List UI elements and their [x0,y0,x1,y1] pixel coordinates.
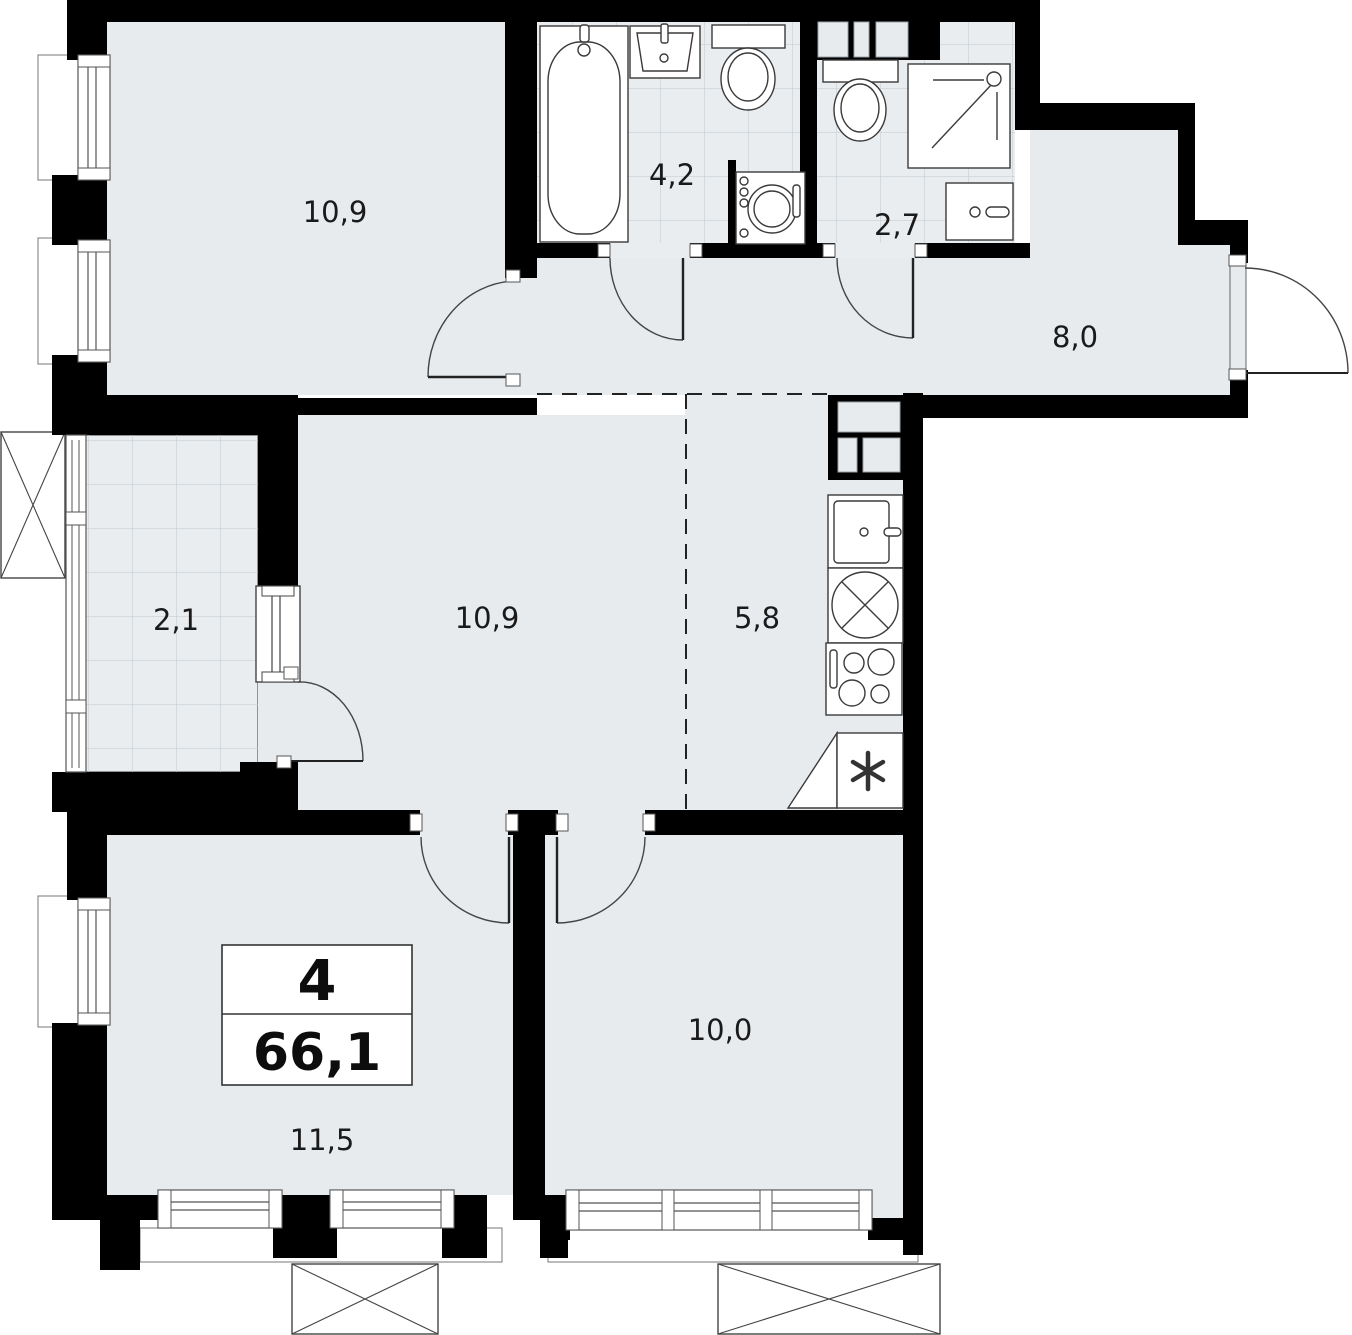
sill-left-1 [38,55,80,180]
window-left-3 [78,898,110,1025]
small-sink-icon [946,183,1013,240]
wall-bottom-rooms-divider [513,835,545,1220]
door-gap-bathroom [610,243,690,258]
floor-plan-drawing: 10,9 4,2 2,7 8,0 2,1 10,9 5,8 11,5 10,0 … [0,0,1352,1335]
label-balcony: 2,1 [153,603,199,637]
entrance-threshold [1230,263,1246,370]
bathtub-icon [540,25,628,242]
label-kitchen: 5,8 [734,601,780,635]
window-left-2 [78,240,110,362]
summary-box: 4 66,1 [222,945,412,1085]
sill-left-3 [38,896,80,1027]
window-bottom-1 [158,1190,282,1228]
window-bottom-3 [566,1190,872,1230]
stove-icon [826,643,902,715]
sill-bottom-right [548,1228,918,1262]
label-bathroom: 4,2 [649,158,695,192]
door-entrance [1245,268,1348,373]
door-gap-room-bottom-right [558,810,645,835]
label-room-central: 10,9 [455,601,520,635]
label-room-bottom-left: 11,5 [290,1123,355,1157]
label-room-bottom-right: 10,0 [688,1013,753,1047]
kitchen-hob-icon [828,568,903,643]
door-gap-room-bottom-left [420,810,508,835]
label-room-top-left: 10,9 [303,195,368,229]
total-area: 66,1 [253,1023,381,1083]
window-left-1 [78,55,110,180]
basket-bottom-right [718,1264,940,1334]
basket-bottom-left [292,1264,438,1334]
window-bottom-2 [330,1190,454,1228]
washing-machine-icon [736,172,805,244]
kitchen-sink-icon [828,495,903,568]
wall-room-bottom-right [903,812,923,1255]
label-hallway: 8,0 [1052,320,1098,354]
wall-hallway-bottom [903,395,1248,418]
wall-room-bathroom [505,0,537,278]
bathroom-sink-icon [630,24,700,78]
floor-plan-page: 10,9 4,2 2,7 8,0 2,1 10,9 5,8 11,5 10,0 … [0,0,1352,1335]
door-gap-balcony [258,680,298,762]
rooms-count: 4 [298,949,337,1014]
balcony-glazing [66,435,86,772]
basket-left [1,432,65,578]
label-toilet-shower: 2,7 [874,208,920,242]
shower-icon [908,64,1010,168]
door-gap-toilet [835,243,915,258]
sill-left-2 [38,238,80,364]
